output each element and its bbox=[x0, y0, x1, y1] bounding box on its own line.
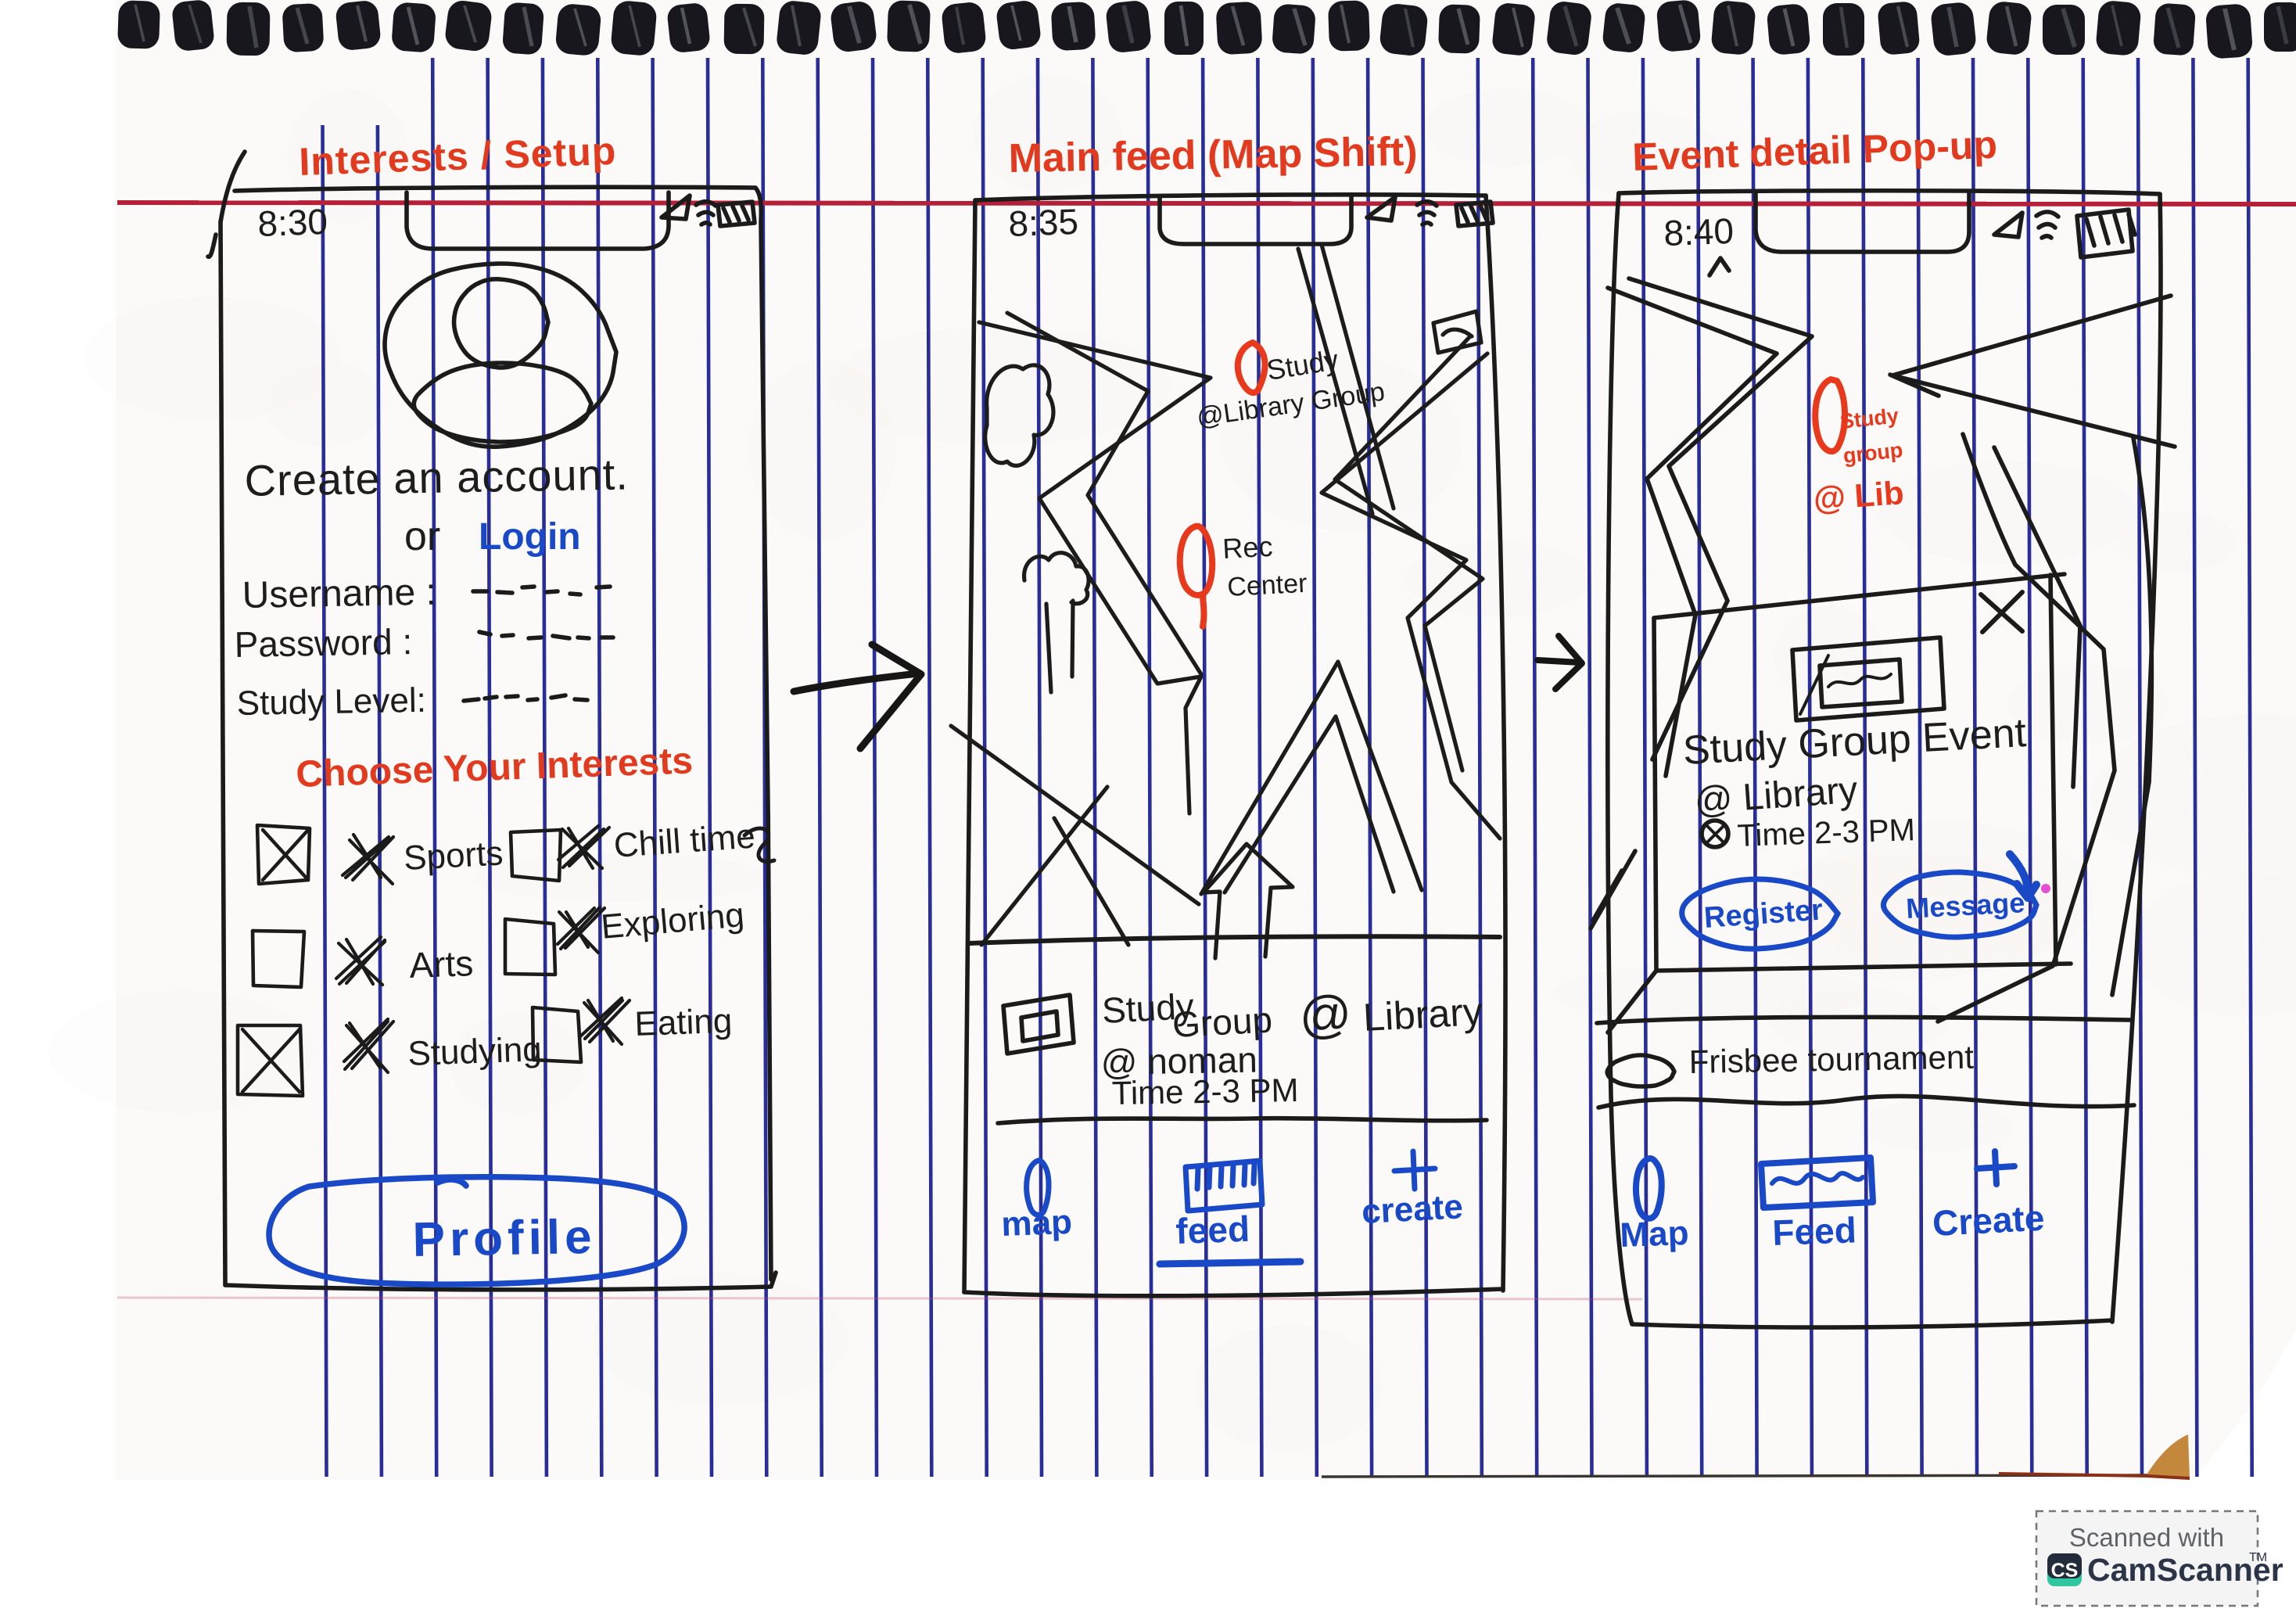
svg-text:Group: Group bbox=[1171, 999, 1273, 1045]
svg-text:map: map bbox=[1001, 1203, 1073, 1244]
svg-text:@ Lib: @ Lib bbox=[1812, 474, 1905, 517]
svg-text:Create: Create bbox=[1932, 1198, 2046, 1244]
svg-text:Studying: Studying bbox=[407, 1030, 543, 1073]
svg-text:Arts: Arts bbox=[409, 943, 475, 986]
svg-text:Eating: Eating bbox=[634, 1002, 733, 1043]
svg-text:Rec: Rec bbox=[1222, 530, 1273, 565]
svg-text:Login: Login bbox=[479, 516, 581, 558]
svg-text:Library: Library bbox=[1362, 989, 1484, 1040]
svg-text:Message: Message bbox=[1905, 886, 2025, 925]
svg-text:8:35: 8:35 bbox=[1008, 201, 1079, 244]
svg-text:Create an account.: Create an account. bbox=[244, 449, 629, 505]
svg-text:8:30: 8:30 bbox=[257, 201, 328, 244]
svg-text:or: or bbox=[404, 514, 440, 559]
svg-text:TM: TM bbox=[2249, 1551, 2267, 1564]
svg-text:Feed: Feed bbox=[1772, 1209, 1857, 1253]
svg-text:@: @ bbox=[1297, 983, 1354, 1044]
svg-text:Main feed (Map Shift): Main feed (Map Shift) bbox=[1008, 129, 1418, 181]
svg-text:Scanned with: Scanned with bbox=[2069, 1523, 2224, 1552]
svg-text:Time 2-3 PM: Time 2-3 PM bbox=[1111, 1072, 1299, 1111]
svg-text:Center: Center bbox=[1226, 569, 1308, 602]
svg-text:Profile: Profile bbox=[412, 1210, 597, 1267]
svg-text:Password :: Password : bbox=[234, 621, 412, 665]
svg-text:Study Level:: Study Level: bbox=[236, 681, 426, 723]
svg-text:feed: feed bbox=[1175, 1208, 1250, 1251]
svg-text:8:40: 8:40 bbox=[1663, 210, 1735, 253]
svg-text:Sports: Sports bbox=[403, 834, 504, 878]
svg-text:Map: Map bbox=[1620, 1214, 1690, 1255]
svg-text:create: create bbox=[1361, 1187, 1464, 1231]
svg-text:Time 2-3 PM: Time 2-3 PM bbox=[1737, 813, 1916, 853]
svg-text:Username :: Username : bbox=[242, 572, 436, 616]
svg-text:Frisbee tournament: Frisbee tournament bbox=[1688, 1039, 1974, 1080]
svg-text:CS: CS bbox=[2051, 1560, 2079, 1582]
